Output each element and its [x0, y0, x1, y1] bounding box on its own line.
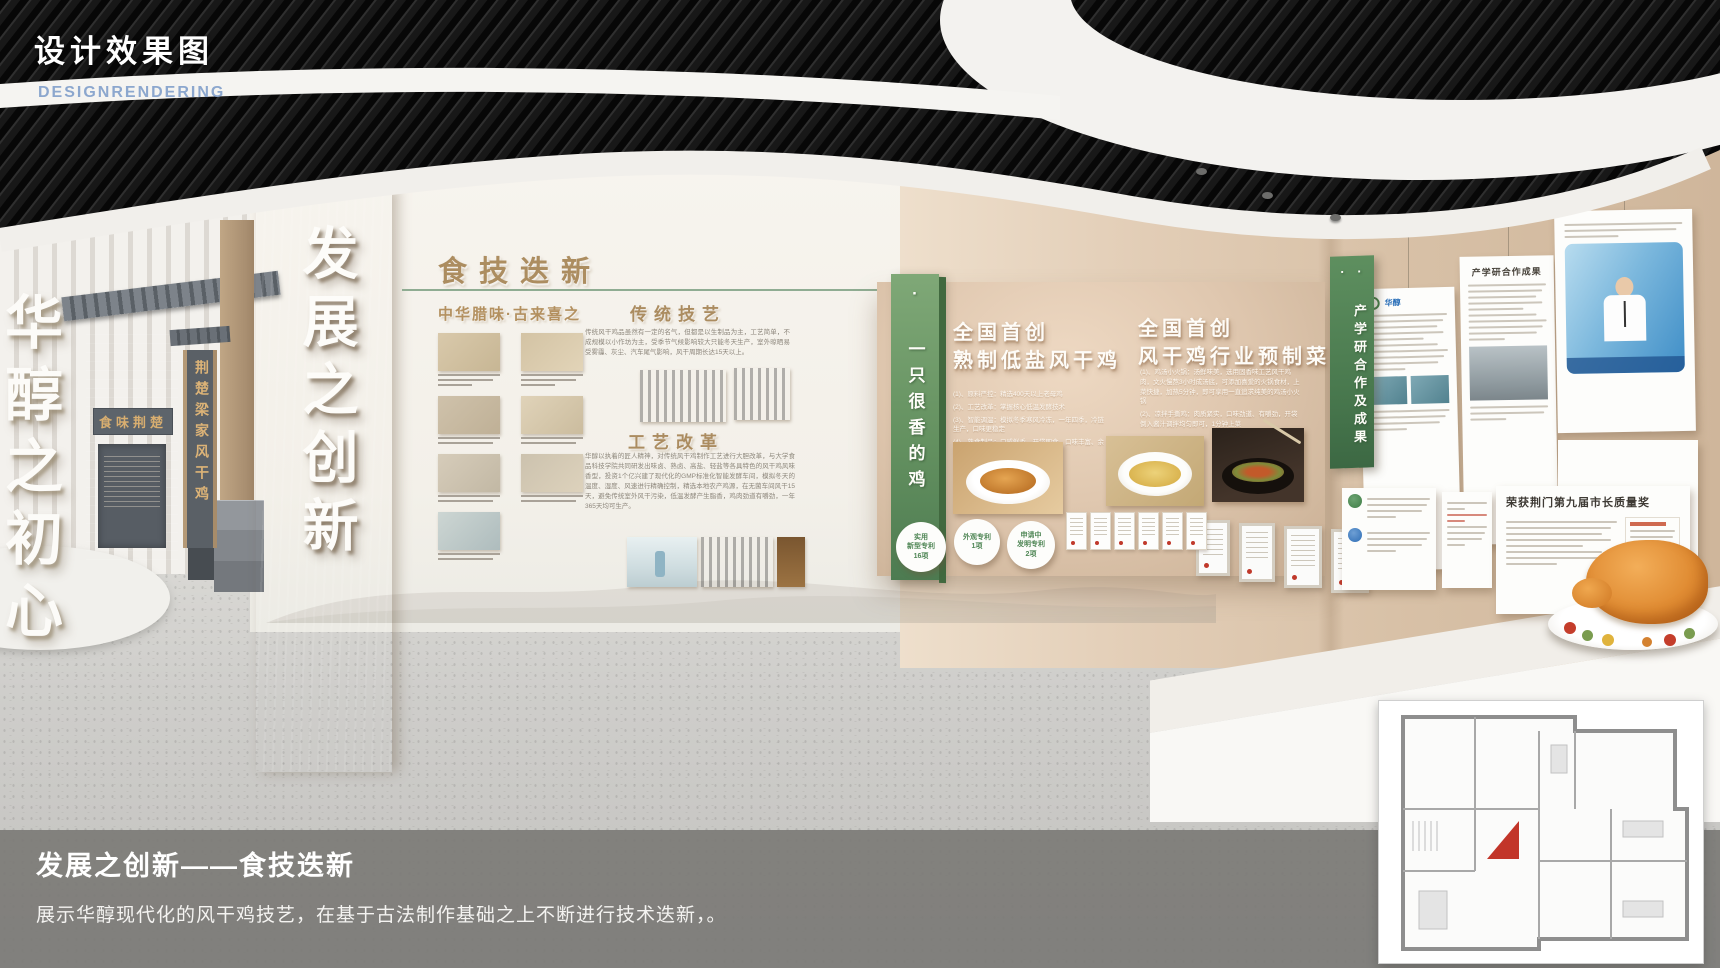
facade-plaque: 食味荆楚 [93, 408, 173, 435]
framed-certificate [1239, 523, 1275, 582]
chicken-soup-photo [1106, 436, 1204, 506]
market-photo [777, 537, 805, 587]
standards-panel [1342, 488, 1436, 590]
cooked-chicken-plate-photo [953, 442, 1063, 514]
shredded-chicken-photo [1212, 428, 1304, 502]
reform-heading: 工艺改革 [628, 428, 724, 453]
floor-plan-drawing [1379, 701, 1703, 963]
tradition-body-text: 传统风干鸡品虽然有一定的名气，但都是以生制品为主，工艺简单，不成规模以小作坊为主… [585, 328, 790, 358]
certificate-card [1138, 512, 1159, 550]
tradition-heading: 传统技艺 [630, 300, 726, 325]
certificate-card [1090, 512, 1111, 550]
promo-right-title-line1: 全国首创 [1138, 312, 1234, 341]
shop-sign-vertical: 荆楚梁家风干鸡 [183, 350, 217, 548]
cooperation-photos [1369, 375, 1450, 405]
facade-text-panel [98, 444, 166, 548]
certificate-card [1114, 512, 1135, 550]
framed-certificate [1284, 526, 1322, 588]
hanging-chicken-photo [640, 370, 726, 422]
patent-badge-design: 外观专利 1项 [954, 519, 1000, 565]
certificate-strip [1066, 512, 1210, 550]
promo-left-title-line1: 全国首创 [953, 316, 1049, 345]
patent-badge-utility: 实用 新型专利 16项 [896, 522, 946, 572]
blue-org-logo [1348, 528, 1362, 542]
drying-room-photo [701, 537, 773, 587]
factory-photo [627, 537, 697, 587]
history-section-heading: 中华腊味·古来喜之 [438, 303, 581, 324]
design-rendering-scene: 华醇之初心 食味荆楚 荆楚梁家风干鸡 发展之创新 食技迭新 中华腊味·古来喜之 … [0, 0, 1720, 968]
promo-right-title-line2: 风干鸡行业预制菜 [1138, 340, 1330, 369]
brand-vertical-slogan: 华醇之初心 [0, 292, 70, 652]
painting-card [438, 454, 500, 502]
promo-right-feature-list: (1)、鸡汤小火锅：汤鲜味美，选用固香味工艺风干鸡肉，文火慢熬3小时成汤底，可添… [1140, 368, 1300, 433]
sign-pedestal [188, 548, 214, 580]
poster-text-lines [1367, 313, 1448, 371]
track-spotlight [1196, 168, 1207, 175]
caption-description: 展示华醇现代化的风干鸡技艺，在基于古法制作基础之上不断进行技术迭新，。 [36, 900, 727, 927]
track-spotlight [1330, 214, 1341, 221]
notice-panel [1442, 492, 1492, 588]
caption-title: 发展之创新——食技迭新 [36, 844, 355, 883]
painting-card [521, 396, 583, 444]
track-spotlight [1262, 192, 1273, 199]
workers-photo [1469, 345, 1548, 400]
slatted-ceiling [0, 0, 1720, 300]
history-painting-gallery [438, 333, 588, 560]
painting-card [521, 333, 583, 386]
painting-card [438, 396, 500, 444]
painting-card [438, 333, 500, 386]
painting-card [521, 454, 583, 502]
hanging-chicken-photo [734, 368, 790, 420]
reform-body-text: 华醇以执着的匠人精神，对传统风干鸡制作工艺进行大胆改革，与大学食品科技学院共同研… [585, 452, 795, 512]
award-title: 荣获荆门第九届市长质量奖 [1506, 494, 1680, 510]
patent-badge-invention: 申请中 发明专利 2项 [1007, 521, 1055, 569]
painting-card [438, 512, 500, 560]
page-subtitle: DESIGNRENDERING [38, 84, 225, 102]
page-title: 设计效果图 [34, 26, 214, 71]
certificate-card [1162, 512, 1183, 550]
green-org-logo [1348, 494, 1362, 508]
roast-chicken-platter [1544, 538, 1720, 658]
certificate-card [1066, 512, 1087, 550]
promo-left-title-line2: 熟制低盐风干鸡 [953, 344, 1121, 373]
certificate-card [1186, 512, 1207, 550]
floor-plan-inset [1378, 700, 1704, 964]
